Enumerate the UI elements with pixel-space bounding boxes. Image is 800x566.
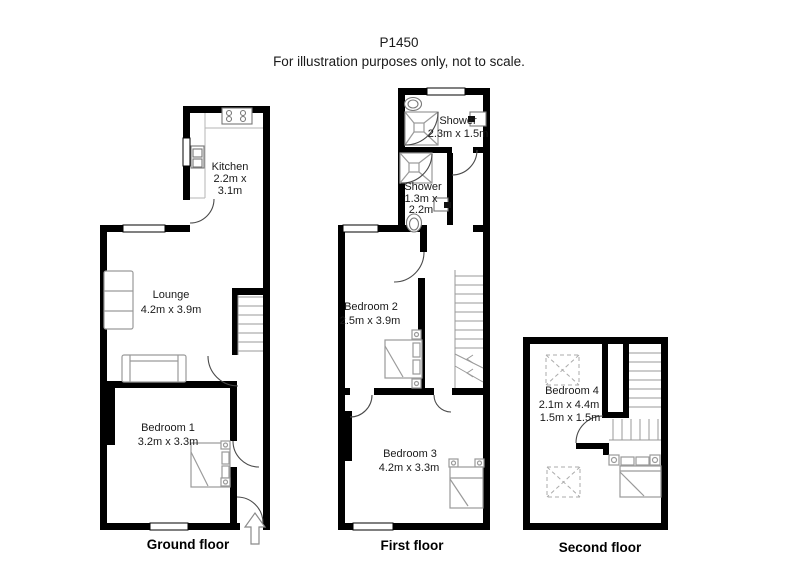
shower-window <box>427 88 465 95</box>
bedroom4-dims: 2.1m x 4.4m <box>539 399 600 411</box>
bedroom4-name: Bedroom 4 <box>545 385 599 397</box>
shower-top-name: Shower <box>439 115 477 127</box>
bedroom1-dims: 3.2m x 3.3m <box>138 436 199 448</box>
second-stairs <box>609 353 661 440</box>
bedroom2-door-arc <box>394 252 424 282</box>
sink-unit-icon <box>191 146 204 168</box>
ground-floor-label: Ground floor <box>147 537 230 552</box>
chimney-breast <box>100 383 115 445</box>
bedroom2-window <box>343 225 378 232</box>
second-floor-plan: Bedroom 4 2.1m x 4.4m 1.5m x 1.5m Second… <box>523 337 668 555</box>
toilet-icon <box>405 98 422 111</box>
armchair-icon <box>104 271 133 329</box>
bedroom3-furniture <box>449 459 484 508</box>
bedroom4-furniture <box>609 455 661 497</box>
bed4-icon <box>609 455 661 497</box>
disclaimer-text: For illustration purposes only, not to s… <box>273 54 525 69</box>
sofa-icon <box>122 355 186 382</box>
skylight-icon-top <box>546 355 579 385</box>
title-block: P1450 For illustration purposes only, no… <box>273 35 525 69</box>
ground-floor-plan: Kitchen 2.2m x 3.1m Lounge 4.2m x 3.9m B… <box>100 106 270 552</box>
shower-top-door-arc <box>452 150 477 175</box>
bedroom1-window <box>150 523 188 530</box>
shower-top-dims: 2.3m x 1.5m <box>428 128 489 140</box>
lounge-furniture <box>104 271 186 382</box>
shower-mid-dims2: 2.2m <box>409 204 433 216</box>
bed2-icon <box>385 330 422 388</box>
first-floor-label: First floor <box>381 538 445 553</box>
ground-stairs <box>238 295 263 355</box>
kitchen-name: Kitchen <box>212 161 249 173</box>
bedroom3-right-door-arc <box>434 395 451 412</box>
corner-shower-icon <box>400 153 432 183</box>
bedroom3-dims: 4.2m x 3.3m <box>379 462 440 474</box>
chimney-breast <box>338 411 352 461</box>
first-stairs <box>455 270 483 388</box>
kitchen-dims2: 3.1m <box>218 185 242 197</box>
second-room-labels: Bedroom 4 2.1m x 4.4m 1.5m x 1.5m <box>539 385 601 424</box>
bedroom4-dims2: 1.5m x 1.5m <box>540 412 601 424</box>
kitchen-door-arc <box>190 199 214 223</box>
hob-icon <box>222 108 252 124</box>
bedroom3-left-door-arc <box>350 395 372 417</box>
first-floor-plan: Shower 2.3m x 1.5m Shower 1.3m x 2.2m Be… <box>338 88 490 553</box>
floorplan-page: P1450 For illustration purposes only, no… <box>0 0 800 566</box>
kitchen-window <box>183 138 190 166</box>
second-floor-label: Second floor <box>559 540 642 555</box>
ground-windows <box>123 138 190 530</box>
bedroom1-name: Bedroom 1 <box>141 422 195 434</box>
bedroom2-dims: 2.5m x 3.9m <box>340 315 401 327</box>
bedroom3-window <box>353 523 393 530</box>
bedroom3-name: Bedroom 3 <box>383 448 437 460</box>
floorplan-canvas: P1450 For illustration purposes only, no… <box>0 0 800 566</box>
skylight-icon-bottom <box>547 467 580 497</box>
lounge-name: Lounge <box>153 289 190 301</box>
bed3-icon <box>449 459 484 508</box>
bedroom2-name: Bedroom 2 <box>344 301 398 313</box>
bedroom1-door-arc <box>233 441 259 467</box>
shower-mid-name: Shower <box>404 181 442 193</box>
second-walls <box>523 337 668 530</box>
plan-id: P1450 <box>379 35 418 50</box>
lounge-window <box>123 225 165 232</box>
bedroom2-furniture <box>385 330 422 388</box>
kitchen-dims: 2.2m x <box>213 173 247 185</box>
toilet-icon <box>407 214 422 232</box>
lounge-dims: 4.2m x 3.9m <box>141 304 202 316</box>
